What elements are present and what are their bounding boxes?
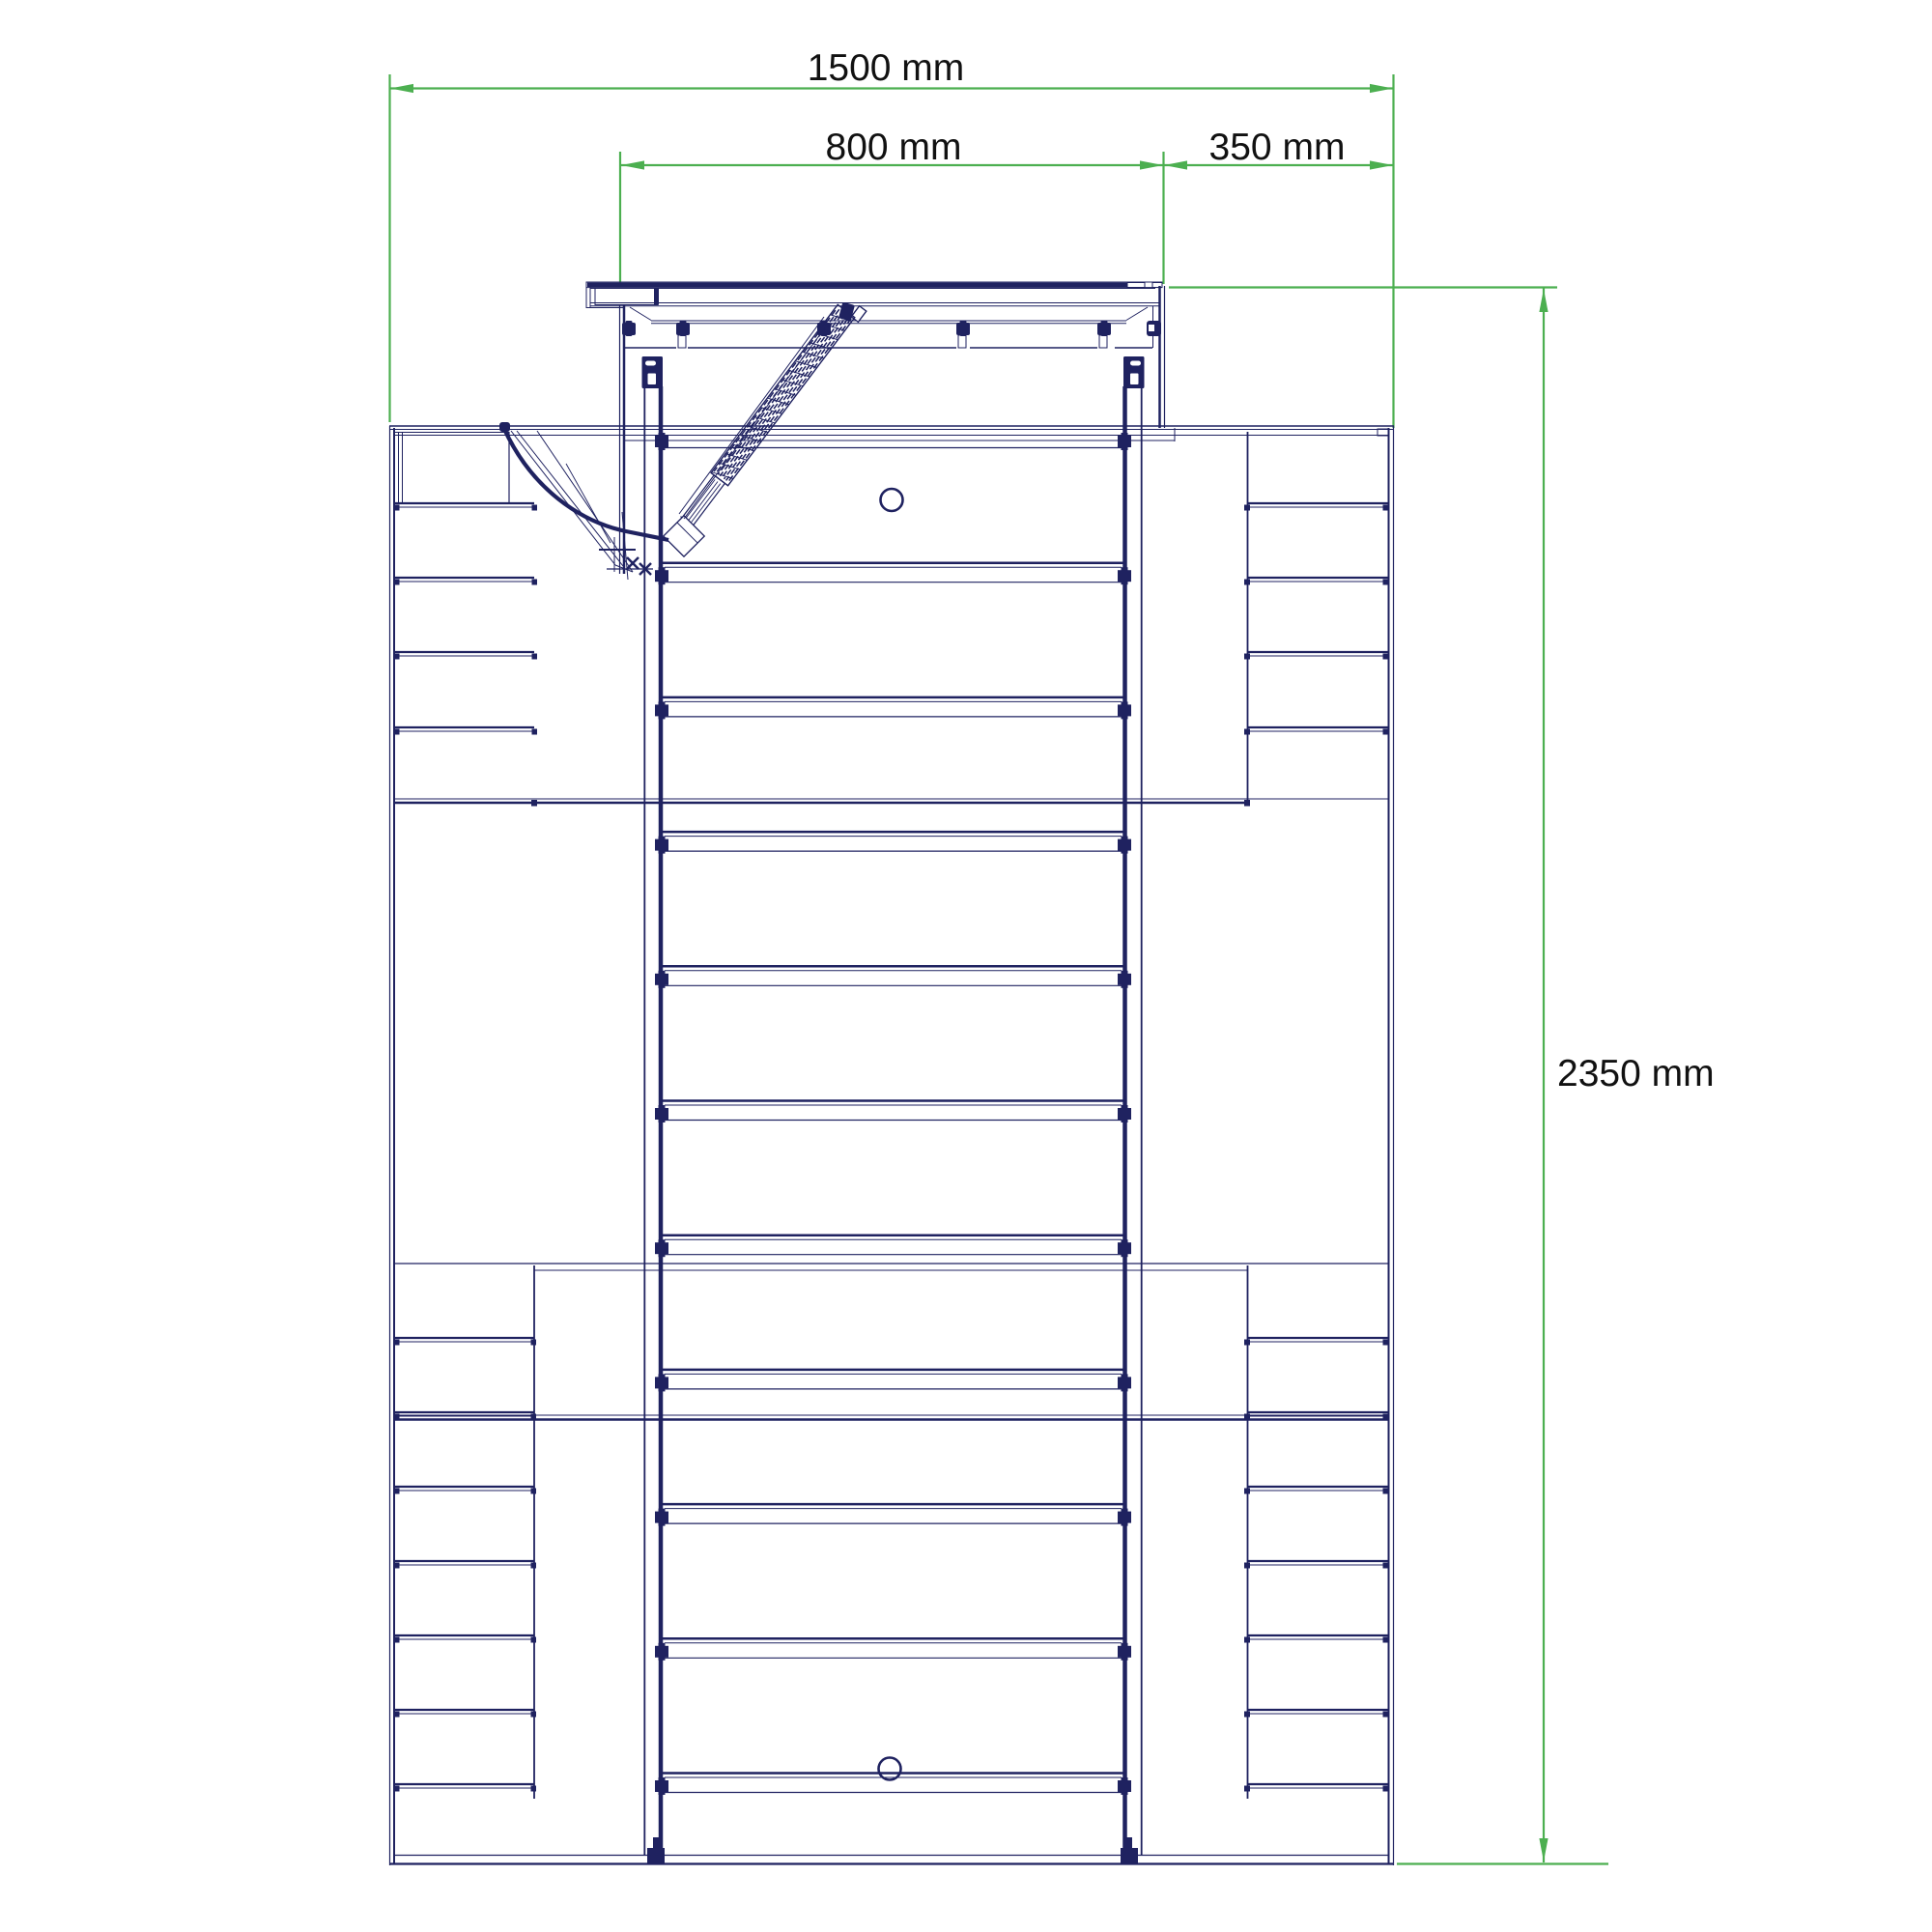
svg-text:800 mm: 800 mm xyxy=(826,127,962,168)
svg-text:350 mm: 350 mm xyxy=(1209,127,1346,168)
svg-text:2350 mm: 2350 mm xyxy=(1557,1053,1715,1094)
svg-text:1500 mm: 1500 mm xyxy=(808,47,965,89)
